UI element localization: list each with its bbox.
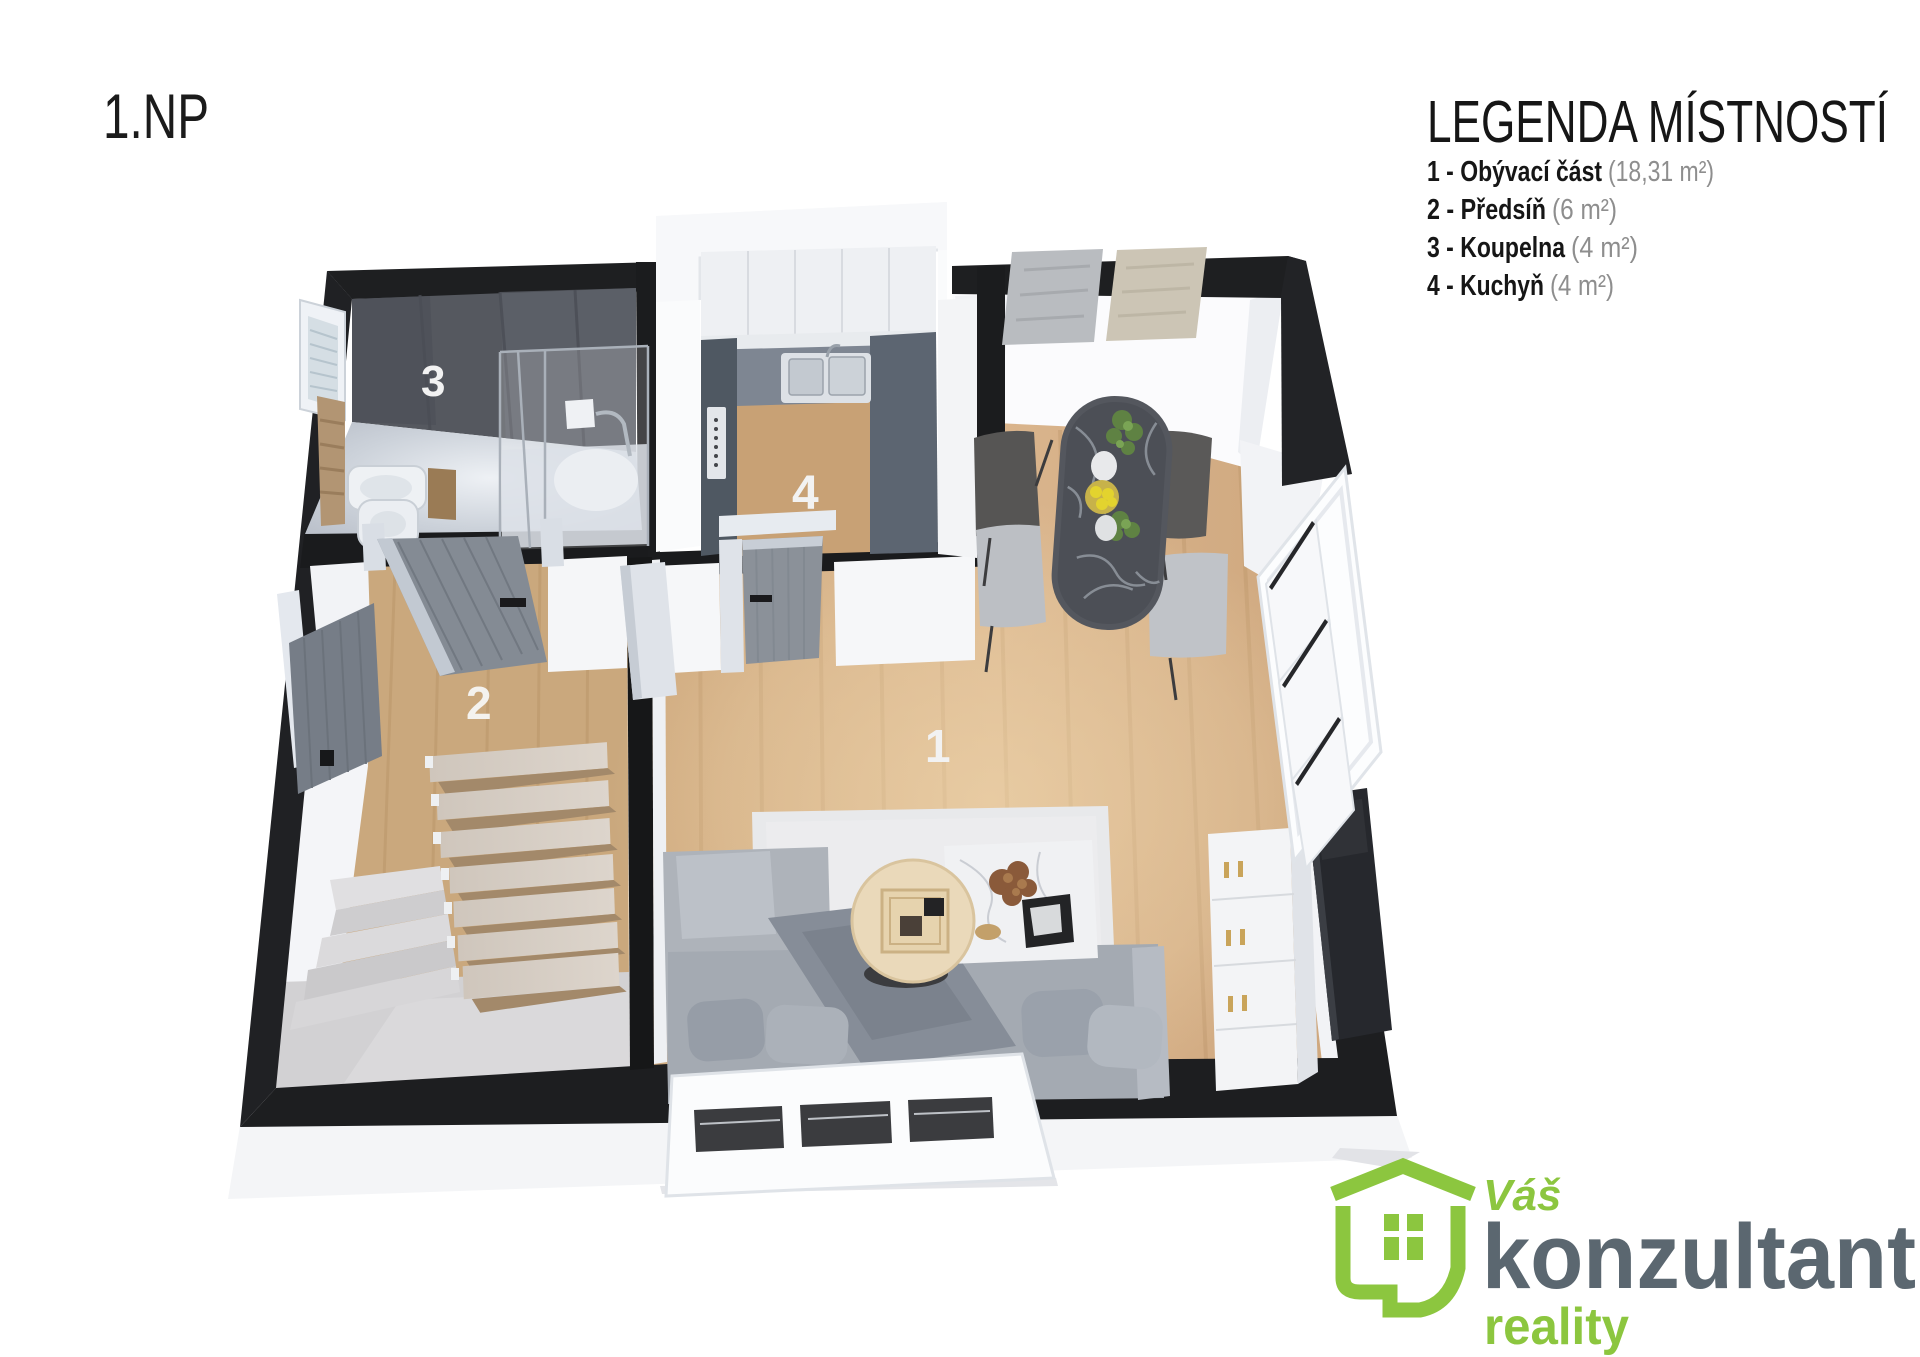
svg-text:konzultant: konzultant	[1482, 1206, 1916, 1308]
svg-text:2: 2	[466, 677, 492, 729]
svg-text:4 - Kuchyň: 4 - Kuchyň	[1427, 270, 1544, 302]
svg-text:(4 m²): (4 m²)	[1571, 232, 1638, 264]
svg-text:1: 1	[925, 720, 951, 772]
svg-text:1.NP: 1.NP	[103, 82, 209, 152]
svg-text:3: 3	[421, 357, 445, 406]
svg-text:LEGENDA MÍSTNOSTÍ: LEGENDA MÍSTNOSTÍ	[1427, 89, 1888, 155]
svg-text:(4 m²): (4 m²)	[1550, 270, 1614, 302]
svg-text:3 - Koupelna: 3 - Koupelna	[1427, 232, 1566, 264]
svg-text:2 - Předsíň: 2 - Předsíň	[1427, 194, 1546, 226]
svg-text:reality: reality	[1484, 1298, 1629, 1356]
svg-text:1 - Obývací část: 1 - Obývací část	[1427, 156, 1602, 188]
svg-text:(18,31 m²): (18,31 m²)	[1608, 156, 1714, 188]
svg-text:(6 m²): (6 m²)	[1552, 194, 1617, 226]
